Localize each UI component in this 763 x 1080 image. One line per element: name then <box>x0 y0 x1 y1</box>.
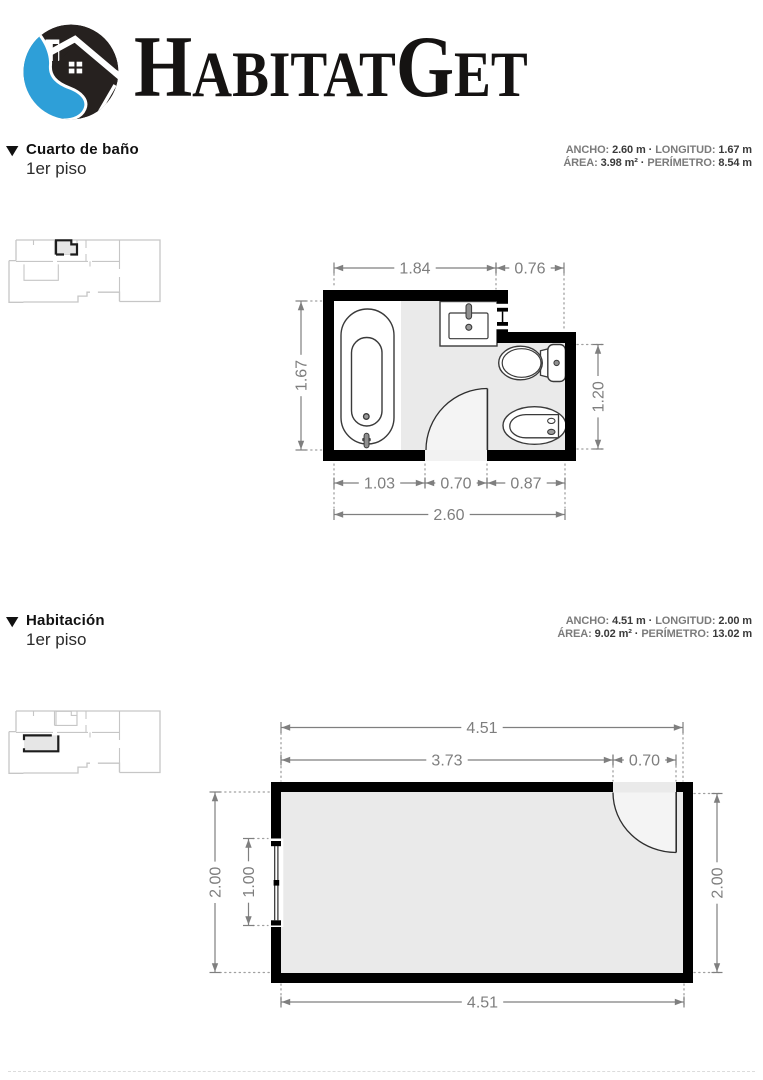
svg-text:0.70: 0.70 <box>440 476 471 493</box>
svg-text:1.00: 1.00 <box>241 866 258 897</box>
svg-text:1.84: 1.84 <box>399 261 430 278</box>
svg-text:4.51: 4.51 <box>466 720 497 737</box>
svg-text:2.60: 2.60 <box>433 507 464 524</box>
svg-text:3.73: 3.73 <box>431 753 462 770</box>
svg-text:0.87: 0.87 <box>510 476 541 493</box>
svg-text:1.03: 1.03 <box>364 476 395 493</box>
svg-text:1.20: 1.20 <box>591 381 608 412</box>
svg-text:0.70: 0.70 <box>629 753 660 770</box>
svg-text:2.00: 2.00 <box>208 867 225 898</box>
svg-text:2.00: 2.00 <box>710 867 727 898</box>
svg-text:0.76: 0.76 <box>514 261 545 278</box>
svg-text:4.51: 4.51 <box>467 995 498 1012</box>
svg-text:1.67: 1.67 <box>294 360 311 391</box>
